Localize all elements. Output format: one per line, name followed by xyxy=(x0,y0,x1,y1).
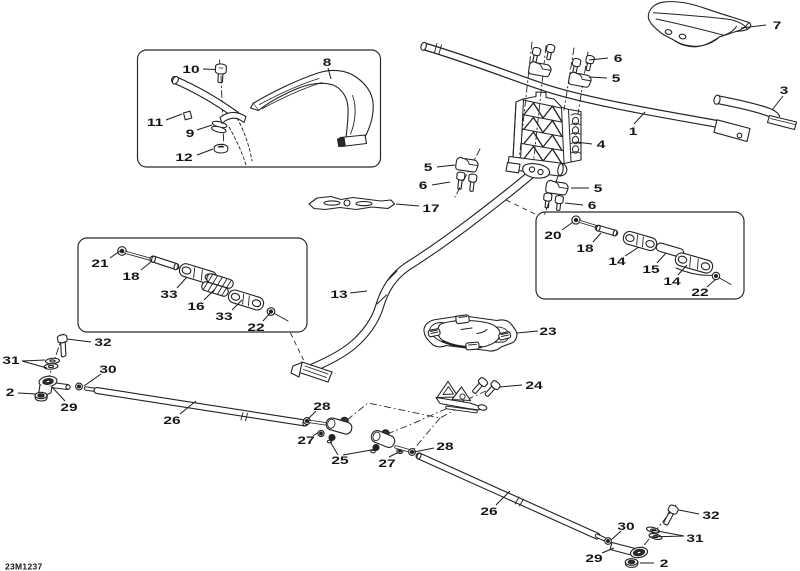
svg-text:5: 5 xyxy=(424,161,433,173)
svg-text:26: 26 xyxy=(163,414,181,426)
svg-text:32: 32 xyxy=(94,336,111,348)
svg-text:29: 29 xyxy=(585,552,602,564)
svg-text:27: 27 xyxy=(378,457,395,469)
svg-text:1: 1 xyxy=(629,125,638,137)
svg-text:21: 21 xyxy=(91,257,109,269)
svg-text:15: 15 xyxy=(642,263,660,275)
svg-text:33: 33 xyxy=(160,288,178,300)
svg-text:18: 18 xyxy=(576,242,594,254)
svg-text:33: 33 xyxy=(215,310,233,322)
svg-text:2: 2 xyxy=(660,557,669,569)
svg-text:22: 22 xyxy=(247,321,264,333)
svg-text:23M1237: 23M1237 xyxy=(5,562,43,571)
svg-text:12: 12 xyxy=(175,151,192,163)
svg-text:22: 22 xyxy=(691,286,708,298)
svg-text:23: 23 xyxy=(539,325,557,337)
svg-text:27: 27 xyxy=(297,434,314,446)
svg-text:10: 10 xyxy=(182,63,199,75)
svg-text:14: 14 xyxy=(663,275,681,287)
svg-text:26: 26 xyxy=(480,505,498,517)
svg-text:32: 32 xyxy=(702,509,719,521)
svg-text:4: 4 xyxy=(597,138,606,150)
svg-text:30: 30 xyxy=(99,363,116,375)
svg-text:20: 20 xyxy=(544,229,561,241)
svg-text:5: 5 xyxy=(612,72,621,84)
svg-text:24: 24 xyxy=(525,379,543,391)
svg-text:29: 29 xyxy=(60,401,77,413)
svg-text:13: 13 xyxy=(330,288,348,300)
svg-text:6: 6 xyxy=(614,52,623,64)
svg-text:25: 25 xyxy=(331,454,349,466)
svg-text:2: 2 xyxy=(6,386,15,398)
svg-text:8: 8 xyxy=(323,56,332,68)
svg-text:28: 28 xyxy=(313,400,331,412)
svg-text:14: 14 xyxy=(608,255,626,267)
svg-text:5: 5 xyxy=(594,182,603,194)
svg-text:7: 7 xyxy=(773,19,782,31)
svg-text:28: 28 xyxy=(436,440,454,452)
svg-text:16: 16 xyxy=(187,300,205,312)
svg-text:6: 6 xyxy=(588,199,597,211)
svg-text:6: 6 xyxy=(419,179,428,191)
svg-text:11: 11 xyxy=(147,116,164,128)
svg-text:17: 17 xyxy=(422,202,439,214)
svg-text:9: 9 xyxy=(186,127,195,139)
svg-text:31: 31 xyxy=(686,532,704,544)
svg-text:31: 31 xyxy=(2,354,20,366)
svg-text:30: 30 xyxy=(617,520,634,532)
svg-text:3: 3 xyxy=(780,84,789,96)
svg-text:18: 18 xyxy=(122,270,140,282)
